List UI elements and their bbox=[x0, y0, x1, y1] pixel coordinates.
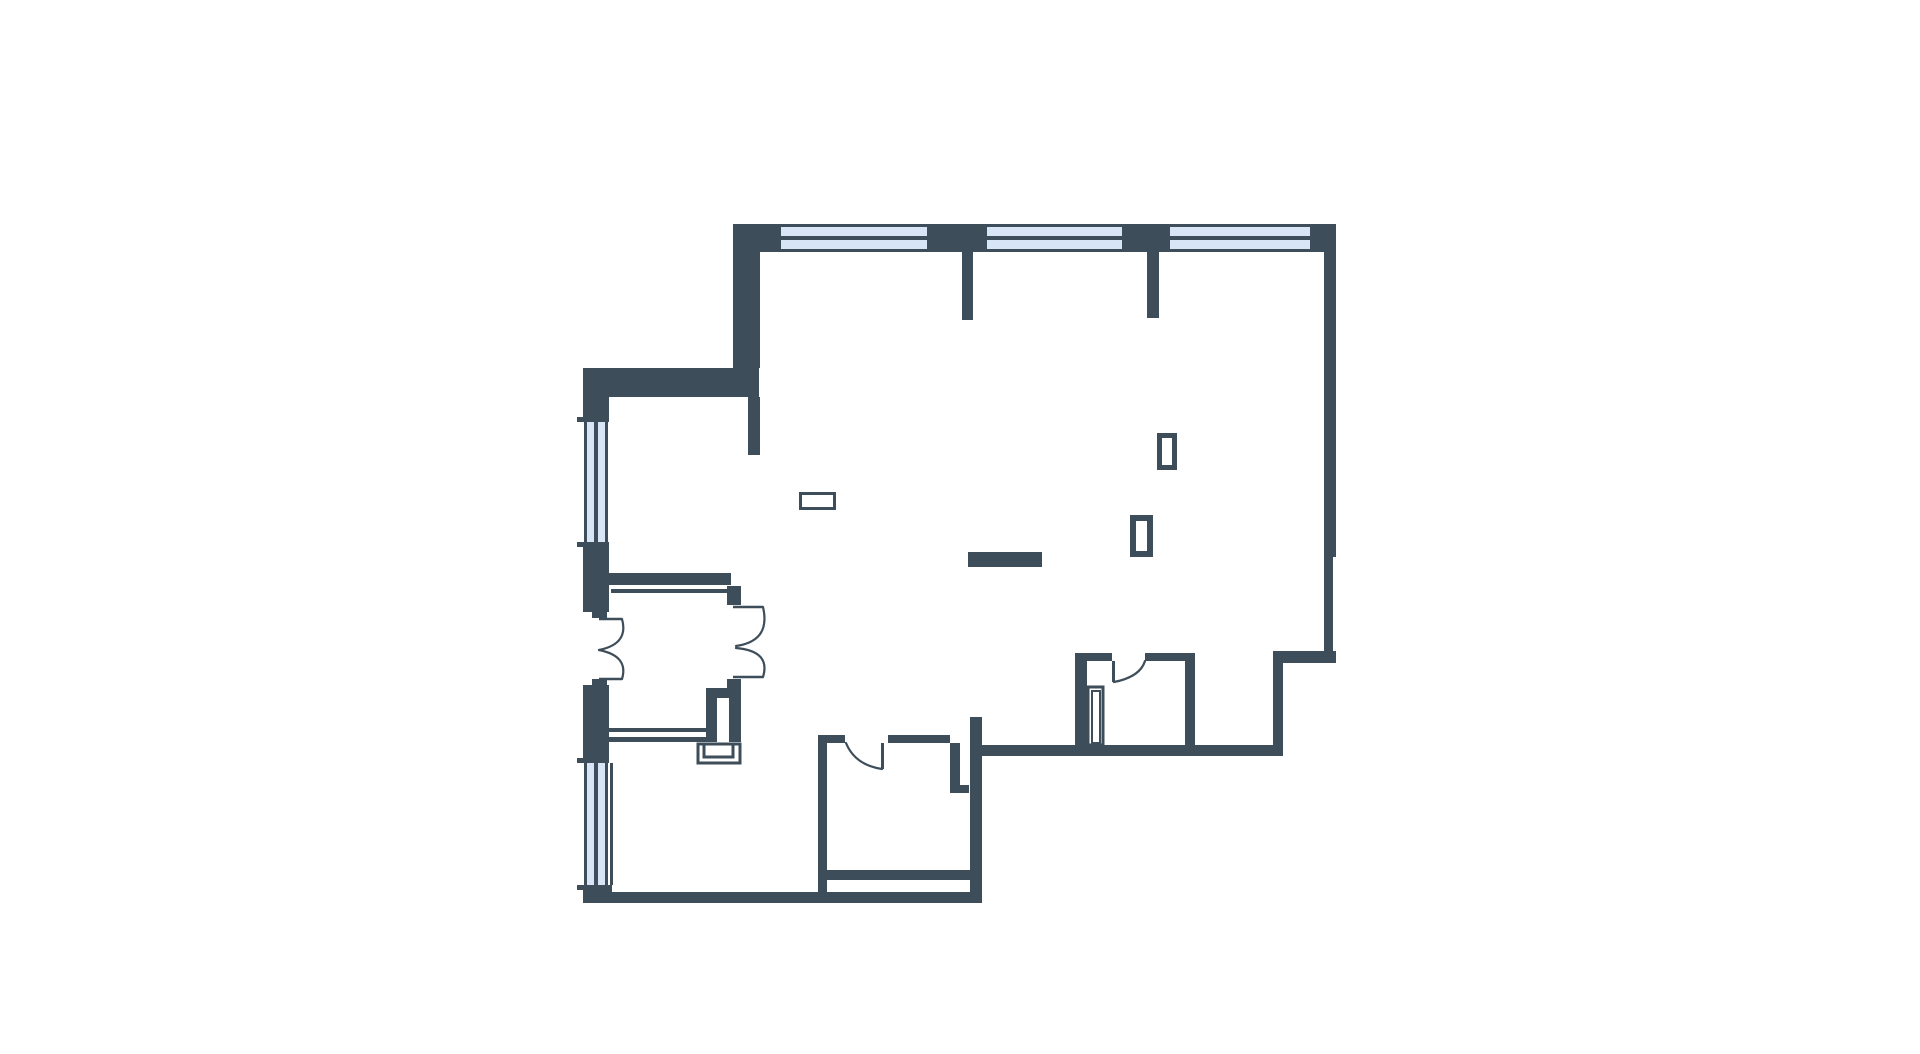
window-cap-4 bbox=[577, 885, 585, 890]
room-top-b bbox=[888, 735, 950, 743]
window-top-2-window bbox=[987, 224, 1122, 252]
window-frame-outer bbox=[584, 422, 587, 542]
window-left-2-window bbox=[584, 763, 608, 885]
wall-left-b bbox=[583, 542, 609, 612]
hall-top-inner-line bbox=[611, 589, 741, 593]
window-frame-outer bbox=[987, 224, 1122, 227]
hall-bottom-b bbox=[609, 737, 710, 742]
stub-below-pier-2 bbox=[1147, 252, 1159, 318]
window-top-3-window bbox=[1170, 224, 1310, 252]
window-mullion bbox=[1170, 236, 1310, 240]
window-frame-outer bbox=[584, 763, 587, 885]
window-mullion bbox=[781, 236, 927, 240]
wall-alcove-right bbox=[1273, 663, 1283, 756]
window-inner-face-line bbox=[610, 763, 613, 885]
entry-arc-top bbox=[599, 619, 623, 650]
wall-bottom-right bbox=[970, 745, 1283, 756]
pier-top-1 bbox=[927, 224, 987, 252]
window-cap-1 bbox=[577, 417, 585, 422]
bath-wall-right bbox=[1185, 653, 1195, 745]
outlet-mid bbox=[1133, 518, 1150, 554]
fixtures-layer bbox=[698, 436, 1175, 764]
floor-plan-drawing bbox=[0, 0, 1920, 1054]
window-cap-2 bbox=[577, 542, 585, 547]
pier-top-2 bbox=[1122, 224, 1170, 252]
wall-left-a bbox=[583, 368, 609, 422]
bath-door-arc bbox=[1114, 661, 1145, 682]
hall-top-wall bbox=[609, 573, 731, 585]
window-frame-inner bbox=[605, 763, 608, 885]
hall-jamb-top bbox=[727, 586, 741, 605]
shaft-box-right bbox=[729, 688, 741, 742]
corner-top-right bbox=[1310, 224, 1336, 252]
bath-door-leaf bbox=[1112, 661, 1115, 682]
hall-arc-bottom bbox=[736, 648, 764, 677]
thick-stub-vertical bbox=[970, 717, 982, 902]
wall-jog-right bbox=[1273, 651, 1336, 663]
wall-bottom-left bbox=[583, 892, 982, 903]
band-horizontal bbox=[583, 368, 759, 397]
walls-layer bbox=[577, 224, 1336, 903]
island-bar bbox=[968, 552, 1042, 567]
panel-inner bbox=[704, 744, 733, 757]
window-mullion bbox=[594, 422, 598, 542]
stub-below-band bbox=[748, 397, 760, 455]
bath-shaft-inner bbox=[1092, 691, 1100, 743]
window-frame-inner bbox=[781, 249, 927, 252]
window-frame-inner bbox=[1170, 249, 1310, 252]
window-frame-inner bbox=[987, 249, 1122, 252]
hall-bottom-a bbox=[609, 728, 710, 732]
window-frame-outer bbox=[781, 224, 927, 227]
room-inner-sill bbox=[827, 870, 970, 880]
window-frame-outer bbox=[1170, 224, 1310, 227]
floor-plan-page bbox=[0, 0, 1920, 1054]
corner-top-left bbox=[733, 224, 781, 252]
outlet-left bbox=[801, 494, 835, 509]
window-top-1-window bbox=[781, 224, 927, 252]
window-cap-3 bbox=[577, 758, 585, 763]
wall-left-upper bbox=[733, 252, 760, 368]
doors-layer bbox=[599, 607, 1145, 769]
hall-arc-top bbox=[736, 607, 764, 646]
bath-wall-left bbox=[1075, 653, 1087, 745]
room-top-a bbox=[818, 735, 845, 743]
entry-jamb-top bbox=[592, 612, 607, 618]
window-frame-inner bbox=[605, 422, 608, 542]
windows-layer bbox=[584, 224, 1310, 885]
window-mullion bbox=[594, 763, 598, 885]
wall-right-lower bbox=[1324, 557, 1333, 663]
niche-partition-horz bbox=[960, 785, 969, 793]
room-door-arc bbox=[846, 743, 882, 769]
entry-arc-bottom bbox=[599, 650, 623, 679]
stub-below-pier-1 bbox=[962, 252, 973, 320]
outlet-upper bbox=[1160, 436, 1175, 468]
wall-right-upper bbox=[1324, 252, 1336, 557]
window-mullion bbox=[987, 236, 1122, 240]
room-wall-left bbox=[818, 735, 827, 892]
niche-partition-vert bbox=[950, 743, 960, 793]
wall-left-c bbox=[583, 685, 609, 763]
window-left-1-window bbox=[584, 422, 608, 542]
room-door-leaf bbox=[881, 743, 884, 769]
